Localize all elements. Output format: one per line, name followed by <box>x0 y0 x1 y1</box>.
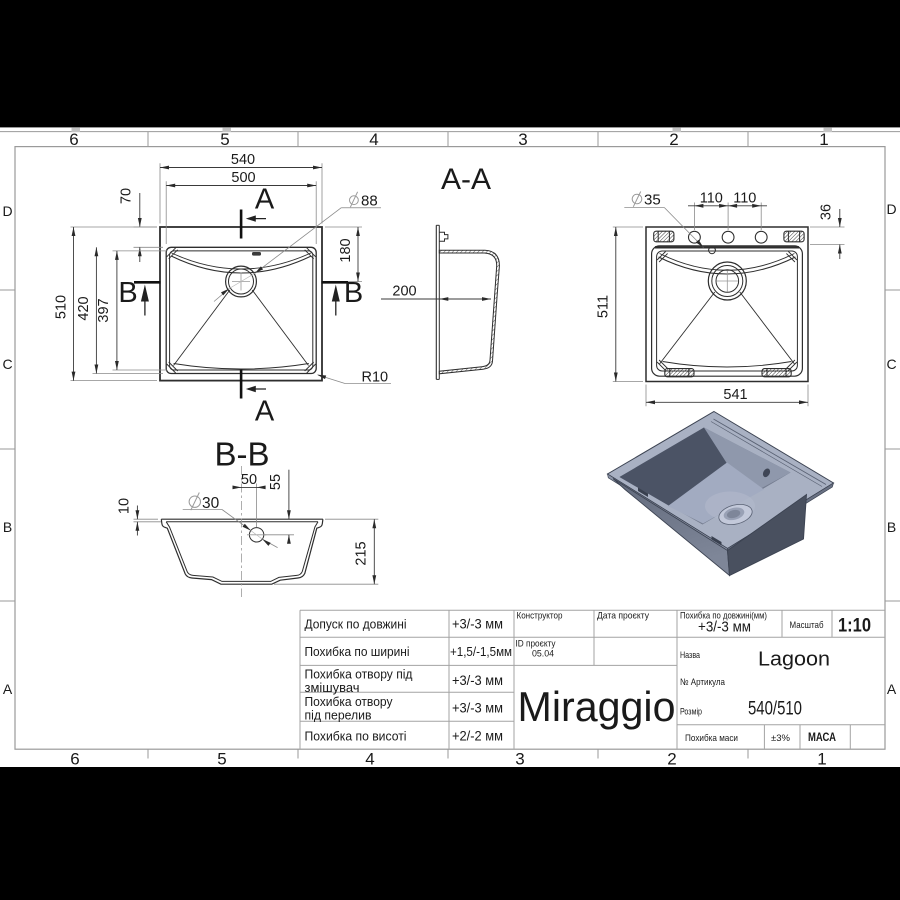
svg-text:36: 36 <box>819 204 835 220</box>
svg-text:540: 540 <box>231 152 255 168</box>
svg-text:4: 4 <box>365 750 374 769</box>
svg-text:10: 10 <box>117 498 133 514</box>
svg-text:ID проєкту: ID проєкту <box>516 639 557 649</box>
svg-text:+3/-3 мм: +3/-3 мм <box>452 616 503 631</box>
svg-text:B: B <box>344 277 363 309</box>
svg-text:540/510: 540/510 <box>748 699 802 720</box>
svg-text:D: D <box>2 203 12 219</box>
svg-text:5: 5 <box>217 750 226 769</box>
svg-text:35: 35 <box>644 192 661 209</box>
svg-text:B-B: B-B <box>214 436 269 473</box>
svg-text:МАСА: МАСА <box>808 730 836 744</box>
svg-text:+3/-3 мм: +3/-3 мм <box>698 620 751 636</box>
svg-text:A: A <box>255 396 275 428</box>
svg-text:Допуск по довжині: Допуск по довжині <box>305 616 407 631</box>
svg-text:420: 420 <box>76 296 92 320</box>
svg-text:A: A <box>887 681 897 697</box>
svg-text:№ Артикула: № Артикула <box>680 677 726 688</box>
svg-text:Похибка маси: Похибка маси <box>685 733 738 744</box>
svg-text:110: 110 <box>733 190 756 206</box>
svg-text:215: 215 <box>354 541 370 565</box>
svg-text:30: 30 <box>202 495 220 512</box>
svg-text:B: B <box>3 519 12 535</box>
svg-text:05.04: 05.04 <box>532 649 554 659</box>
svg-text:B: B <box>118 277 137 309</box>
svg-text:+2/-2 мм: +2/-2 мм <box>452 729 503 744</box>
svg-text:5: 5 <box>220 130 229 149</box>
svg-text:1: 1 <box>819 130 828 149</box>
svg-text:A: A <box>3 681 13 697</box>
svg-text:Дата проєкту: Дата проєкту <box>597 611 649 622</box>
svg-text:50: 50 <box>241 472 257 488</box>
svg-text:Miraggio: Miraggio <box>518 683 676 730</box>
svg-text:1:10: 1:10 <box>838 615 871 637</box>
svg-text:+3/-3 мм: +3/-3 мм <box>452 673 503 688</box>
svg-text:1: 1 <box>817 750 826 769</box>
svg-text:6: 6 <box>70 750 79 769</box>
svg-text:200: 200 <box>392 284 416 300</box>
svg-text:Конструктор: Конструктор <box>517 611 563 622</box>
svg-text:500: 500 <box>231 170 255 186</box>
svg-text:+1,5/-1,5мм: +1,5/-1,5мм <box>450 644 512 659</box>
svg-text:4: 4 <box>369 130 378 149</box>
svg-text:Назва: Назва <box>680 650 701 661</box>
svg-text:88: 88 <box>361 193 378 210</box>
svg-text:2: 2 <box>669 130 678 149</box>
svg-text:змішувач: змішувач <box>305 680 360 695</box>
svg-text:Похибка по висоті: Похибка по висоті <box>305 729 407 744</box>
svg-text:A: A <box>255 184 275 216</box>
svg-text:3: 3 <box>518 130 527 149</box>
svg-text:Масштаб: Масштаб <box>790 620 824 631</box>
svg-text:C: C <box>2 356 12 372</box>
svg-text:R10: R10 <box>362 369 389 385</box>
svg-text:2: 2 <box>667 750 676 769</box>
svg-text:3: 3 <box>515 750 524 769</box>
svg-text:180: 180 <box>338 238 354 262</box>
svg-text:510: 510 <box>54 295 70 319</box>
svg-text:Похибка по ширині: Похибка по ширині <box>305 644 410 659</box>
svg-text:55: 55 <box>268 474 284 490</box>
svg-text:D: D <box>886 201 896 217</box>
svg-text:+3/-3 мм: +3/-3 мм <box>452 701 503 716</box>
svg-text:C: C <box>886 356 896 372</box>
svg-text:±3%: ±3% <box>771 733 791 744</box>
svg-text:B: B <box>887 519 896 535</box>
svg-text:Lagoon: Lagoon <box>758 648 830 671</box>
svg-text:під перелив: під перелив <box>305 708 372 723</box>
svg-text:6: 6 <box>69 130 78 149</box>
svg-text:397: 397 <box>96 298 112 322</box>
svg-text:110: 110 <box>700 190 723 206</box>
svg-text:541: 541 <box>723 387 747 403</box>
svg-text:Розмір: Розмір <box>680 707 702 718</box>
svg-text:70: 70 <box>119 188 135 204</box>
svg-text:A-A: A-A <box>441 163 491 196</box>
svg-text:511: 511 <box>596 295 612 318</box>
